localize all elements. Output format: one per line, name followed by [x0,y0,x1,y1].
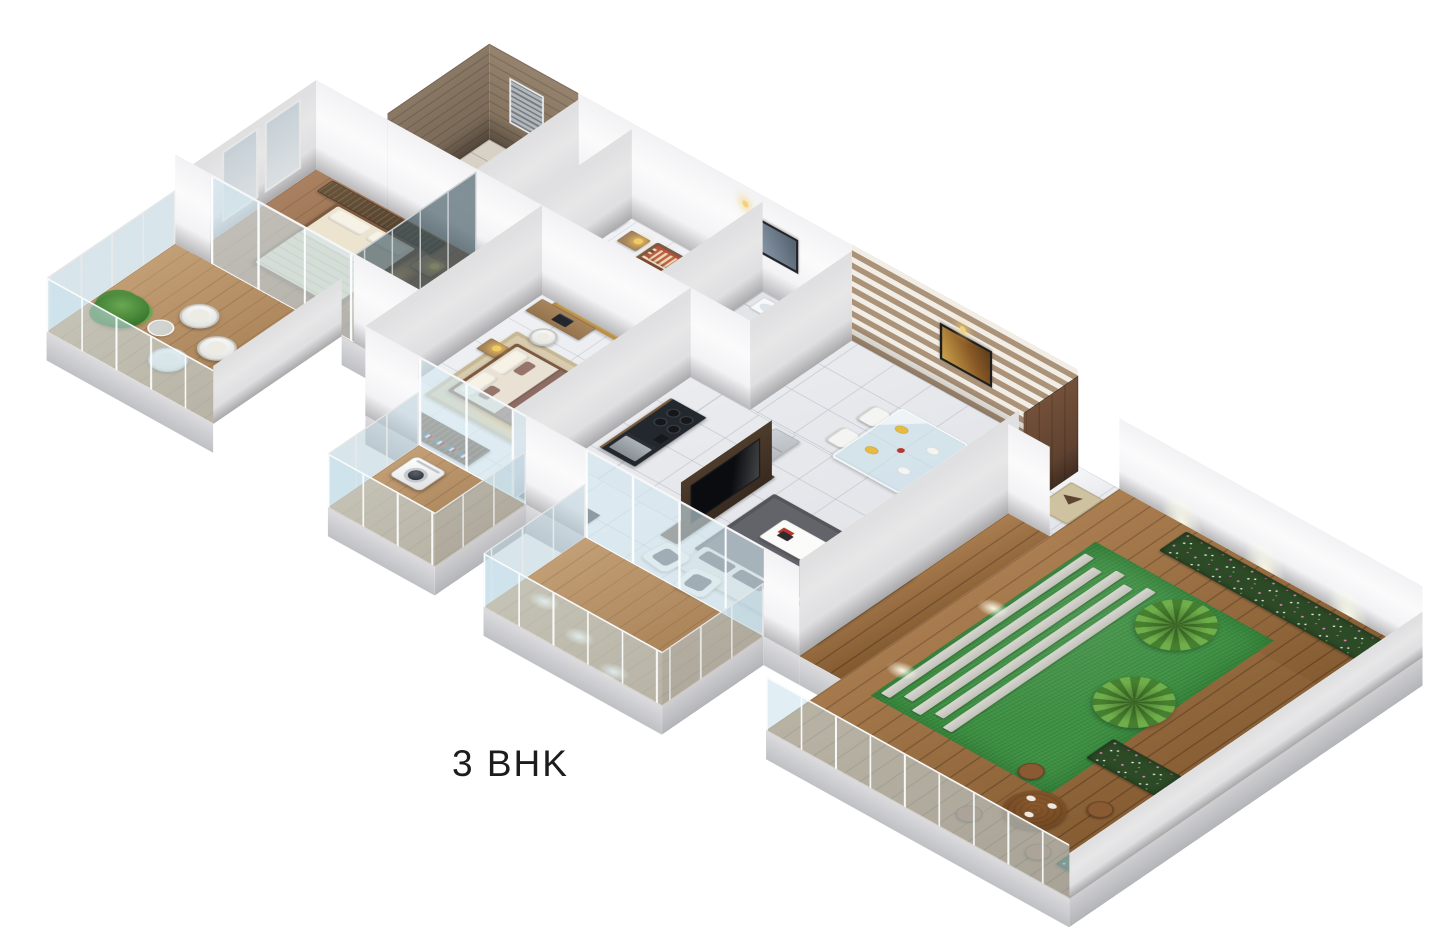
terrace-plate [1024,794,1037,802]
terrace-chair [1081,798,1119,822]
nightstand-bed-3-lamp [632,237,646,245]
plan-title: 3 BHK [452,742,569,786]
wall-lamp-icon [742,199,748,209]
island-coffee-maker [653,434,669,444]
terrace-chair [1012,759,1050,783]
terrace-plate [1022,810,1035,818]
terrace-plate [1046,802,1059,810]
wall-lamp-icon [960,325,966,335]
nightstand-bed-2-lamp [490,344,504,352]
mat-logo [1059,495,1083,507]
roundchair-balcony-2-seat [203,339,230,356]
roundchair-balcony-1-seat [186,307,213,324]
laptop [551,313,574,327]
dining-vase [895,447,906,454]
window-icon [265,98,301,193]
dining-plate [924,445,943,456]
dining-plate [895,465,914,476]
dining-plate [862,445,881,456]
dining-plate [892,424,911,435]
island-burner [663,423,683,436]
floorplan-3d-render: 3 BHK [0,0,1430,928]
chair-desk-seat [534,331,553,342]
wall-art-frame [940,322,992,388]
wall-photo-frame [757,217,799,274]
island-burner [676,414,696,427]
